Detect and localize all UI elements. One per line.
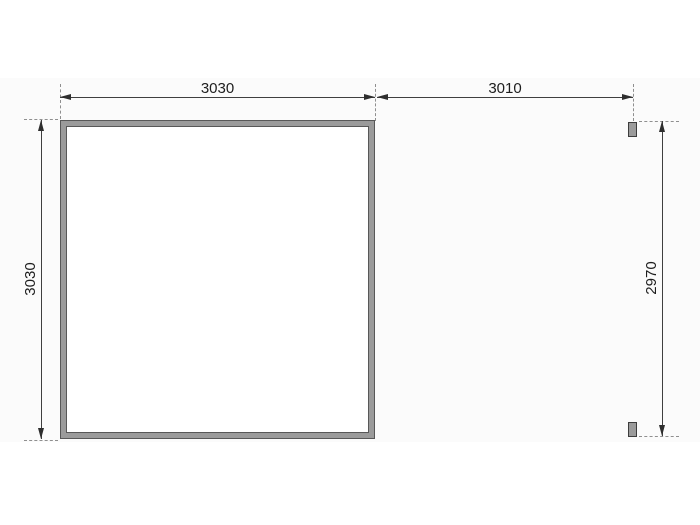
building-wall-outline xyxy=(60,120,375,439)
dimension-line-main-depth xyxy=(41,120,42,439)
building-interior xyxy=(66,126,369,433)
dimension-label-main-width: 3030 xyxy=(60,81,375,97)
dimension-line-annex-width xyxy=(377,97,633,98)
extension-line-top-right xyxy=(633,84,634,121)
dimension-line-annex-depth xyxy=(662,121,663,436)
arrowhead-up-icon xyxy=(659,121,665,132)
technical-drawing-canvas: 3030 3010 3030 2970 xyxy=(0,0,700,525)
dimension-label-main-depth: 3030 xyxy=(23,249,39,309)
extension-line-right-bottom xyxy=(639,436,679,437)
dimension-label-annex-depth: 2970 xyxy=(644,248,660,308)
extension-line-left-bottom xyxy=(24,440,58,441)
arrowhead-down-icon xyxy=(38,428,44,439)
dimension-line-main-width xyxy=(60,97,375,98)
extension-line-top-middle xyxy=(375,84,376,121)
post-bottom-right xyxy=(628,422,637,437)
post-top-right xyxy=(628,122,637,137)
dimension-label-annex-width: 3010 xyxy=(377,81,633,97)
arrowhead-up-icon xyxy=(38,120,44,131)
arrowhead-down-icon xyxy=(659,425,665,436)
